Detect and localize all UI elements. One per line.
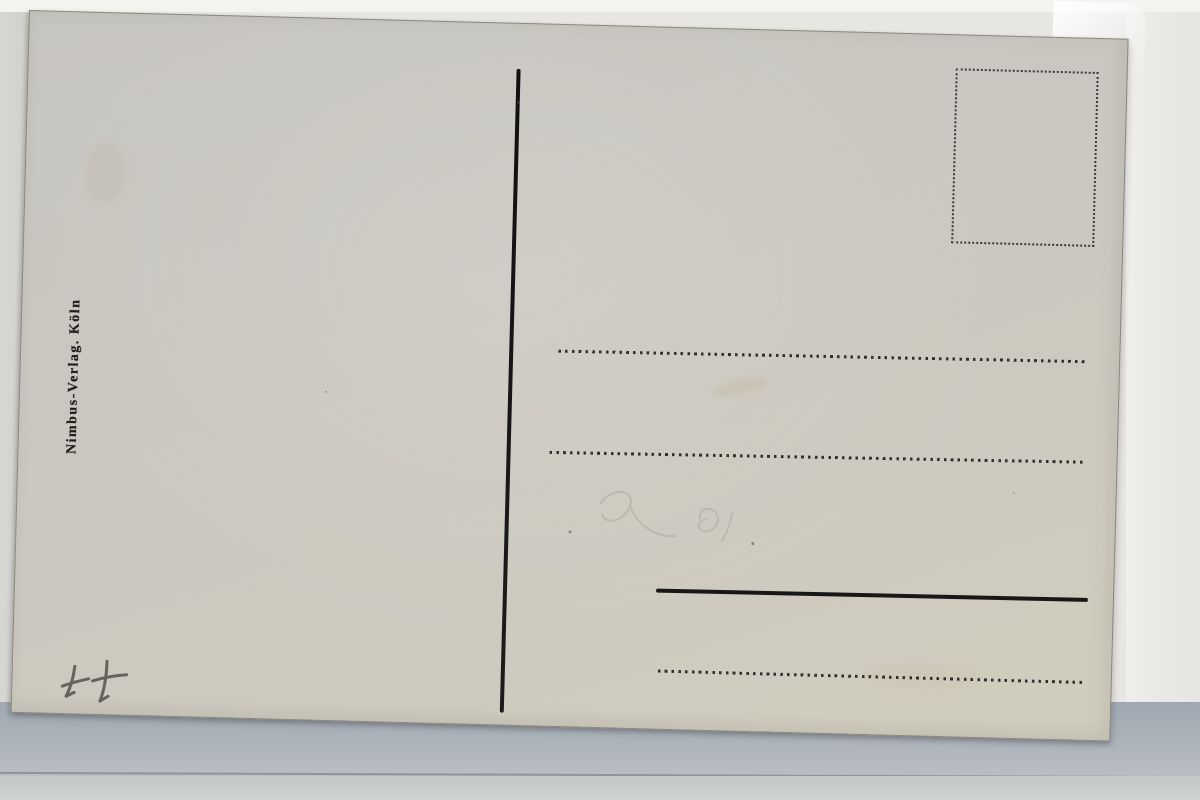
address-line-3-solid xyxy=(656,589,1088,602)
paper-smudge xyxy=(710,373,772,401)
dust-speck xyxy=(568,530,571,533)
postcard-back: Nimbus-Verlag. Köln xyxy=(11,10,1129,742)
paper-smudge xyxy=(85,143,127,204)
pencil-annotation-marks xyxy=(50,652,141,712)
dust-speck xyxy=(517,101,520,104)
address-line-2 xyxy=(550,451,1086,464)
dust-speck xyxy=(325,391,327,393)
faint-pencil-handwriting xyxy=(571,475,823,572)
backdrop-top-strip xyxy=(0,0,1200,12)
dust-speck xyxy=(751,542,754,545)
publisher-imprint: Nimbus-Verlag. Köln xyxy=(64,298,84,454)
message-address-divider-line xyxy=(500,69,521,713)
address-line-1 xyxy=(558,350,1087,364)
stamp-box xyxy=(951,68,1099,247)
backdrop-bottom-light-band xyxy=(0,776,1200,800)
dust-speck xyxy=(1013,492,1015,494)
